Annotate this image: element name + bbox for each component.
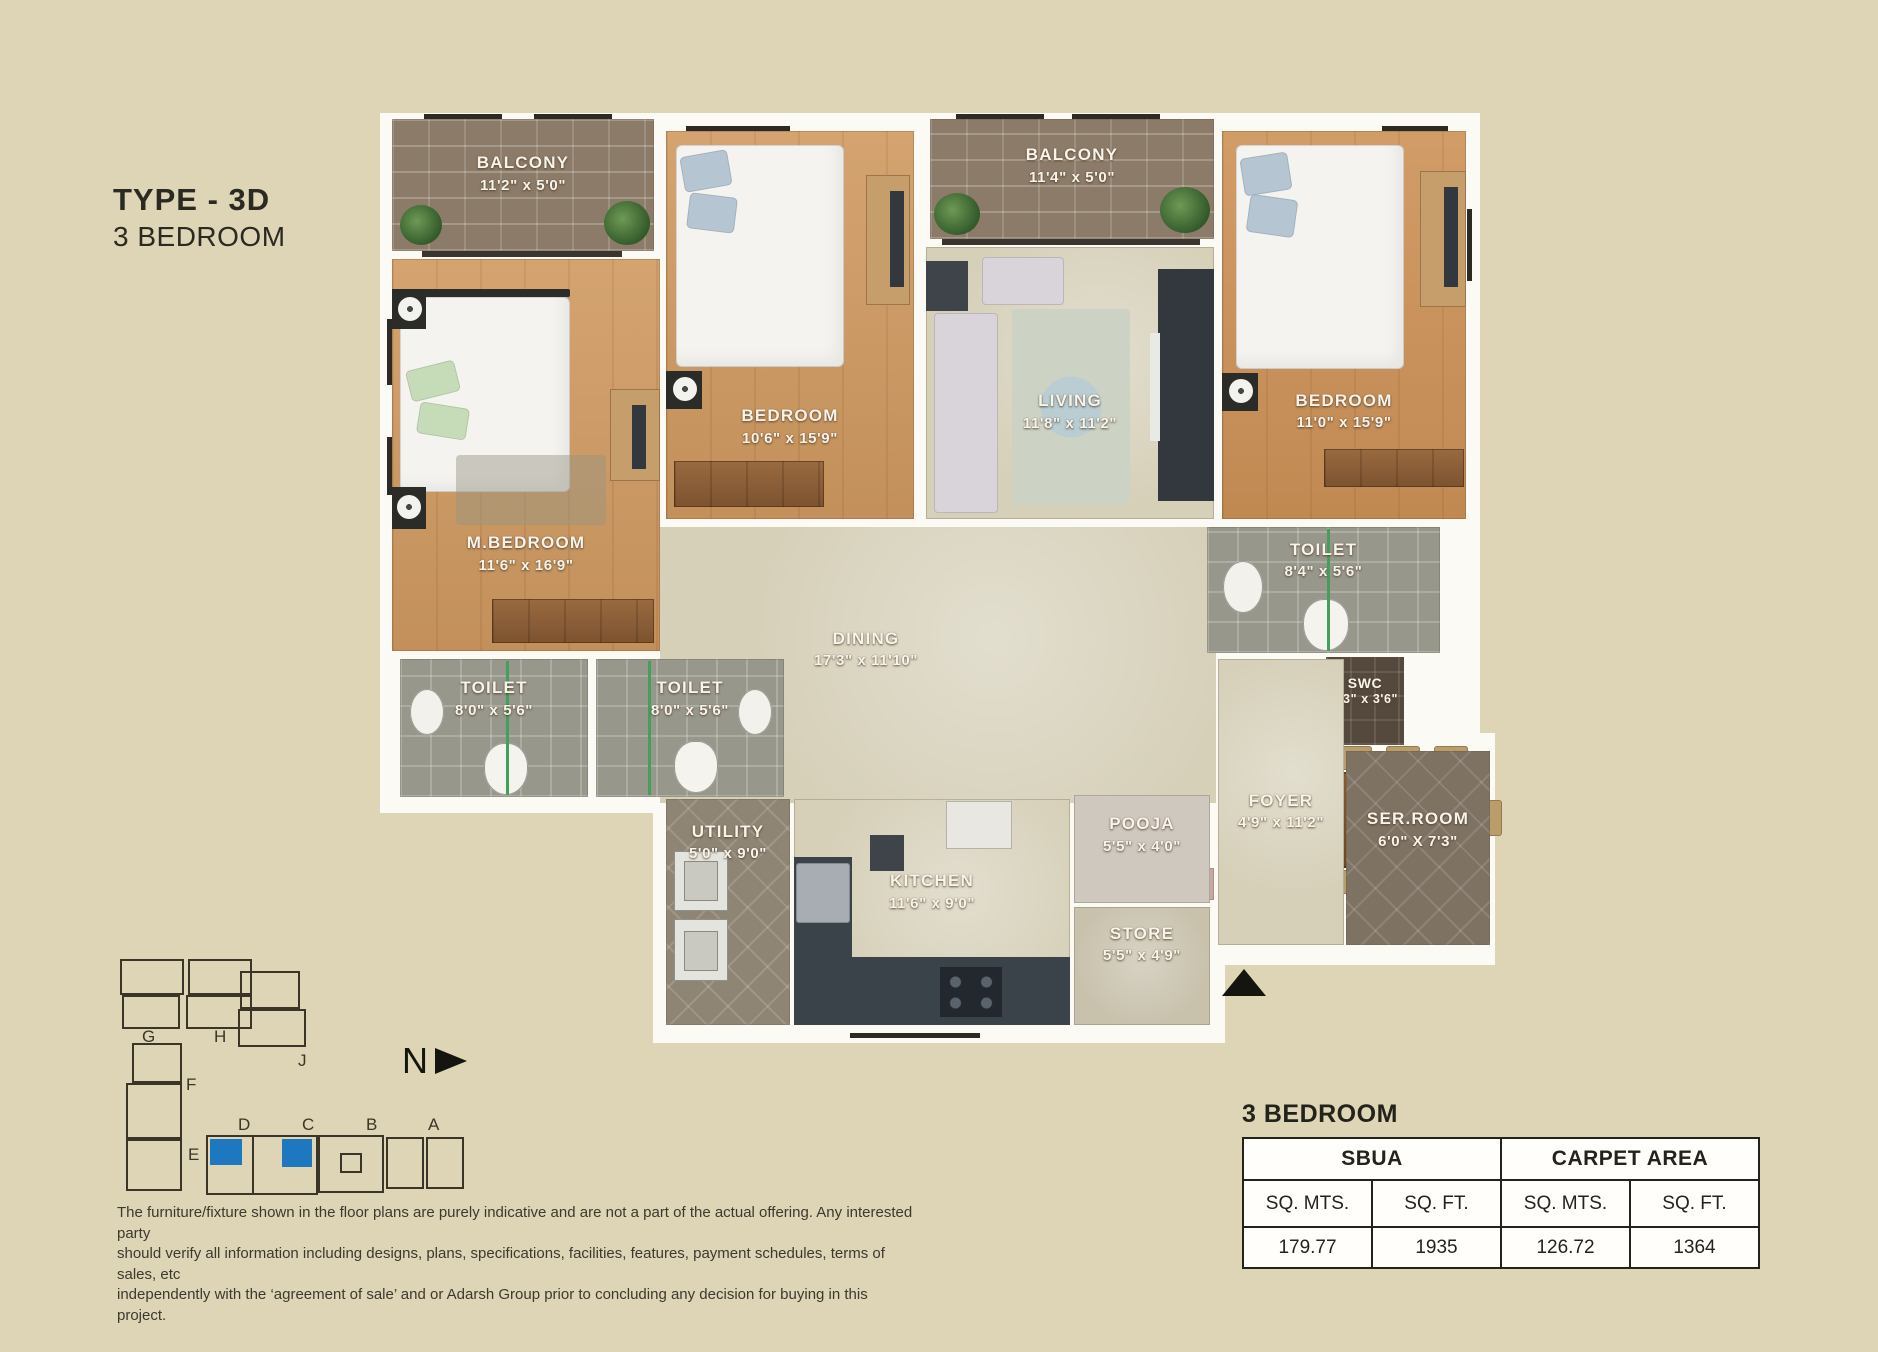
keyplan-label-b: B (366, 1115, 377, 1135)
room-name: TOILET (400, 678, 588, 698)
room-dims: 11'4" x 5'0" (930, 169, 1214, 187)
room-bedroom-3-label: BEDROOM 11'0" x 15'9" (1222, 391, 1466, 432)
keyplan-block-a (426, 1137, 464, 1189)
room-name: POOJA (1074, 814, 1210, 834)
room-balcony-1: BALCONY 11'2" x 5'0" (392, 119, 654, 251)
dresser (1324, 449, 1464, 487)
keyplan-label-e: E (188, 1145, 199, 1165)
room-name: UTILITY (666, 822, 790, 842)
room-dims: 8'4" x 5'6" (1207, 563, 1440, 581)
room-store-label: STORE 5'5" x 4'9" (1074, 924, 1210, 965)
room-bedroom-2: BEDROOM 10'6" x 15'9" (666, 131, 914, 519)
keyplan-block-g (122, 995, 180, 1029)
room-toilet-3-label: TOILET 8'4" x 5'6" (1207, 540, 1440, 581)
title-block: TYPE - 3D 3 BEDROOM (113, 182, 286, 253)
tv-console (1158, 269, 1214, 501)
window (1382, 126, 1448, 131)
room-dims: 8'0" x 5'6" (596, 702, 784, 720)
sub-header: SQ. FT. (1630, 1180, 1759, 1227)
sub-header: SQ. MTS. (1243, 1180, 1372, 1227)
room-balcony-1-label: BALCONY 11'2" x 5'0" (392, 153, 654, 194)
room-dims: 6'0" X 7'3" (1346, 833, 1490, 851)
room-m-bedroom-label: M.BEDROOM 11'6" x 16'9" (392, 533, 660, 574)
keyplan-label-a: A (428, 1115, 439, 1135)
window (1467, 209, 1472, 281)
room-dims: 11'0" x 15'9" (1222, 414, 1466, 432)
disclaimer-line: should verify all information including … (117, 1244, 917, 1285)
keyplan-label-d: D (238, 1115, 250, 1135)
window (424, 114, 502, 119)
kitchen-counter (794, 957, 1070, 1025)
room-name: BEDROOM (1222, 391, 1466, 411)
keyplan-core-b (340, 1153, 362, 1173)
keyplan-block-a (386, 1137, 424, 1189)
disclaimer-line: independently with the ‘agreement of sal… (117, 1285, 917, 1326)
floor-plan: DINING 17'3" x 11'10" BALCONY 11'2" x 5'… (380, 113, 1512, 1043)
window (850, 1033, 980, 1038)
room-store: STORE 5'5" x 4'9" (1074, 907, 1210, 1025)
keyplan-label-g: G (142, 1027, 155, 1047)
room-name: DINING (666, 629, 1066, 649)
appliance (870, 835, 904, 871)
keyplan-label-h: H (214, 1027, 226, 1047)
keyplan-label-c: C (302, 1115, 314, 1135)
room-dims: 11'6" x 16'9" (392, 557, 660, 575)
window (387, 319, 392, 385)
room-name: TOILET (1207, 540, 1440, 560)
room-toilet-1-label: TOILET 8'0" x 5'6" (400, 678, 588, 719)
page: { "header": { "title": "TYPE - 3D", "sub… (0, 0, 1878, 1352)
window (686, 126, 790, 131)
sliding-door (942, 239, 1200, 245)
room-dims: 8'0" x 5'6" (400, 702, 588, 720)
room-name: BEDROOM (666, 406, 914, 426)
area-value: 126.72 (1501, 1227, 1630, 1268)
lamp-icon (397, 495, 421, 519)
room-name: LIVING (926, 391, 1214, 411)
pillow (1246, 194, 1299, 238)
room-name: M.BEDROOM (392, 533, 660, 553)
room-toilet-2: TOILET 8'0" x 5'6" (596, 659, 784, 797)
rug (456, 455, 606, 525)
stove-icon (940, 967, 1002, 1017)
room-balcony-2-label: BALCONY 11'4" x 5'0" (930, 145, 1214, 186)
room-living: LIVING 11'8" x 11'2" (926, 247, 1214, 519)
room-dims: 4'9" x 11'2" (1218, 814, 1344, 832)
area-value: 1364 (1630, 1227, 1759, 1268)
tv-icon (1444, 187, 1458, 287)
area-table: SBUA CARPET AREA SQ. MTS. SQ. FT. SQ. MT… (1242, 1137, 1760, 1269)
tv-cabinet (1420, 171, 1466, 307)
wardrobe (492, 599, 654, 643)
plan-subtitle: 3 BEDROOM (113, 221, 286, 253)
room-kitchen-label: KITCHEN 11'6" x 9'0" (794, 871, 1070, 912)
room-name: SER.ROOM (1346, 809, 1490, 829)
keyplan-block-e (126, 1139, 182, 1191)
pillow (1239, 151, 1292, 196)
plant-icon (1160, 187, 1210, 233)
pillow (686, 192, 738, 234)
room-balcony-2: BALCONY 11'4" x 5'0" (930, 119, 1214, 239)
plan-type-title: TYPE - 3D (113, 182, 286, 218)
keyplan-block-f (132, 1043, 182, 1083)
room-bedroom-2-label: BEDROOM 10'6" x 15'9" (666, 406, 914, 447)
plant-icon (934, 193, 980, 235)
area-value: 179.77 (1243, 1227, 1372, 1268)
window (387, 437, 392, 495)
keyplan-block-j (240, 971, 300, 1009)
room-living-label: LIVING 11'8" x 11'2" (926, 391, 1214, 432)
wardrobe (674, 461, 824, 507)
room-bedroom-3: BEDROOM 11'0" x 15'9" (1222, 131, 1466, 519)
room-dims: 5'5" x 4'9" (1074, 947, 1210, 965)
room-pooja: POOJA 5'5" x 4'0" (1074, 795, 1210, 903)
area-value: 1935 (1372, 1227, 1501, 1268)
room-dims: 11'8" x 11'2" (926, 415, 1214, 433)
room-utility-label: UTILITY 5'0" x 9'0" (666, 822, 790, 863)
sink-bowl (684, 861, 718, 901)
side-table (926, 261, 968, 311)
north-indicator: N (402, 1040, 467, 1082)
area-table-title: 3 BEDROOM (1242, 1100, 1762, 1129)
keyplan-block-e (126, 1083, 182, 1139)
room-name: TOILET (596, 678, 784, 698)
room-name: FOYER (1218, 791, 1344, 811)
room-ser-room-label: SER.ROOM 6'0" X 7'3" (1346, 809, 1490, 850)
utility-sink (674, 919, 728, 981)
kitchen-cabinet (946, 801, 1012, 849)
sofa (982, 257, 1064, 305)
room-name: BALCONY (392, 153, 654, 173)
disclaimer-line: The furniture/fixture shown in the floor… (117, 1203, 917, 1244)
room-foyer: FOYER 4'9" x 11'2" (1218, 659, 1344, 945)
room-kitchen: KITCHEN 11'6" x 9'0" (794, 799, 1070, 1025)
sub-header: SQ. FT. (1372, 1180, 1501, 1227)
tv-icon (890, 191, 904, 287)
col-group-sbua: SBUA (1243, 1138, 1501, 1180)
room-toilet-1: TOILET 8'0" x 5'6" (400, 659, 588, 797)
window (534, 114, 612, 119)
plant-icon (400, 205, 442, 245)
col-group-carpet-area: CARPET AREA (1501, 1138, 1759, 1180)
room-toilet-2-label: TOILET 8'0" x 5'6" (596, 678, 784, 719)
sliding-door (422, 251, 622, 257)
toilet-seat (674, 741, 718, 793)
keyplan-block-g (120, 959, 184, 995)
room-name: STORE (1074, 924, 1210, 944)
north-arrow-icon (435, 1048, 467, 1074)
plant-icon (604, 201, 650, 245)
entrance-arrow-icon (1222, 969, 1266, 996)
room-m-bedroom: M.BEDROOM 11'6" x 16'9" (392, 259, 660, 651)
disclaimer: The furniture/fixture shown in the floor… (117, 1203, 917, 1326)
sink-bowl (684, 931, 718, 971)
room-dims: 5'5" x 4'0" (1074, 838, 1210, 856)
room-dims: 10'6" x 15'9" (666, 430, 914, 448)
room-dims: 5'0" x 9'0" (666, 845, 790, 863)
area-table-block: 3 BEDROOM SBUA CARPET AREA SQ. MTS. SQ. … (1242, 1100, 1762, 1269)
keyplan-label-f: F (186, 1075, 196, 1095)
room-foyer-label: FOYER 4'9" x 11'2" (1218, 791, 1344, 832)
lamp-icon (398, 297, 422, 321)
lamp-icon (673, 377, 697, 401)
room-ser-room: SER.ROOM 6'0" X 7'3" (1346, 751, 1490, 945)
room-name: KITCHEN (794, 871, 1070, 891)
tv-icon (632, 405, 646, 469)
window (956, 114, 1044, 119)
window (1072, 114, 1160, 119)
room-toilet-3: TOILET 8'4" x 5'6" (1207, 527, 1440, 653)
keyplan-label-j: J (298, 1051, 307, 1071)
room-name: BALCONY (930, 145, 1214, 165)
keyplan-highlight-d (210, 1139, 242, 1165)
room-dims: 11'6" x 9'0" (794, 895, 1070, 913)
sub-header: SQ. MTS. (1501, 1180, 1630, 1227)
room-utility: UTILITY 5'0" x 9'0" (666, 799, 790, 1025)
toilet-seat (1303, 599, 1349, 651)
room-pooja-label: POOJA 5'5" x 4'0" (1074, 814, 1210, 855)
room-dims: 11'2" x 5'0" (392, 177, 654, 195)
north-label: N (402, 1040, 430, 1082)
keyplan-block-j (238, 1009, 306, 1047)
keyplan-highlight-c (282, 1139, 312, 1167)
